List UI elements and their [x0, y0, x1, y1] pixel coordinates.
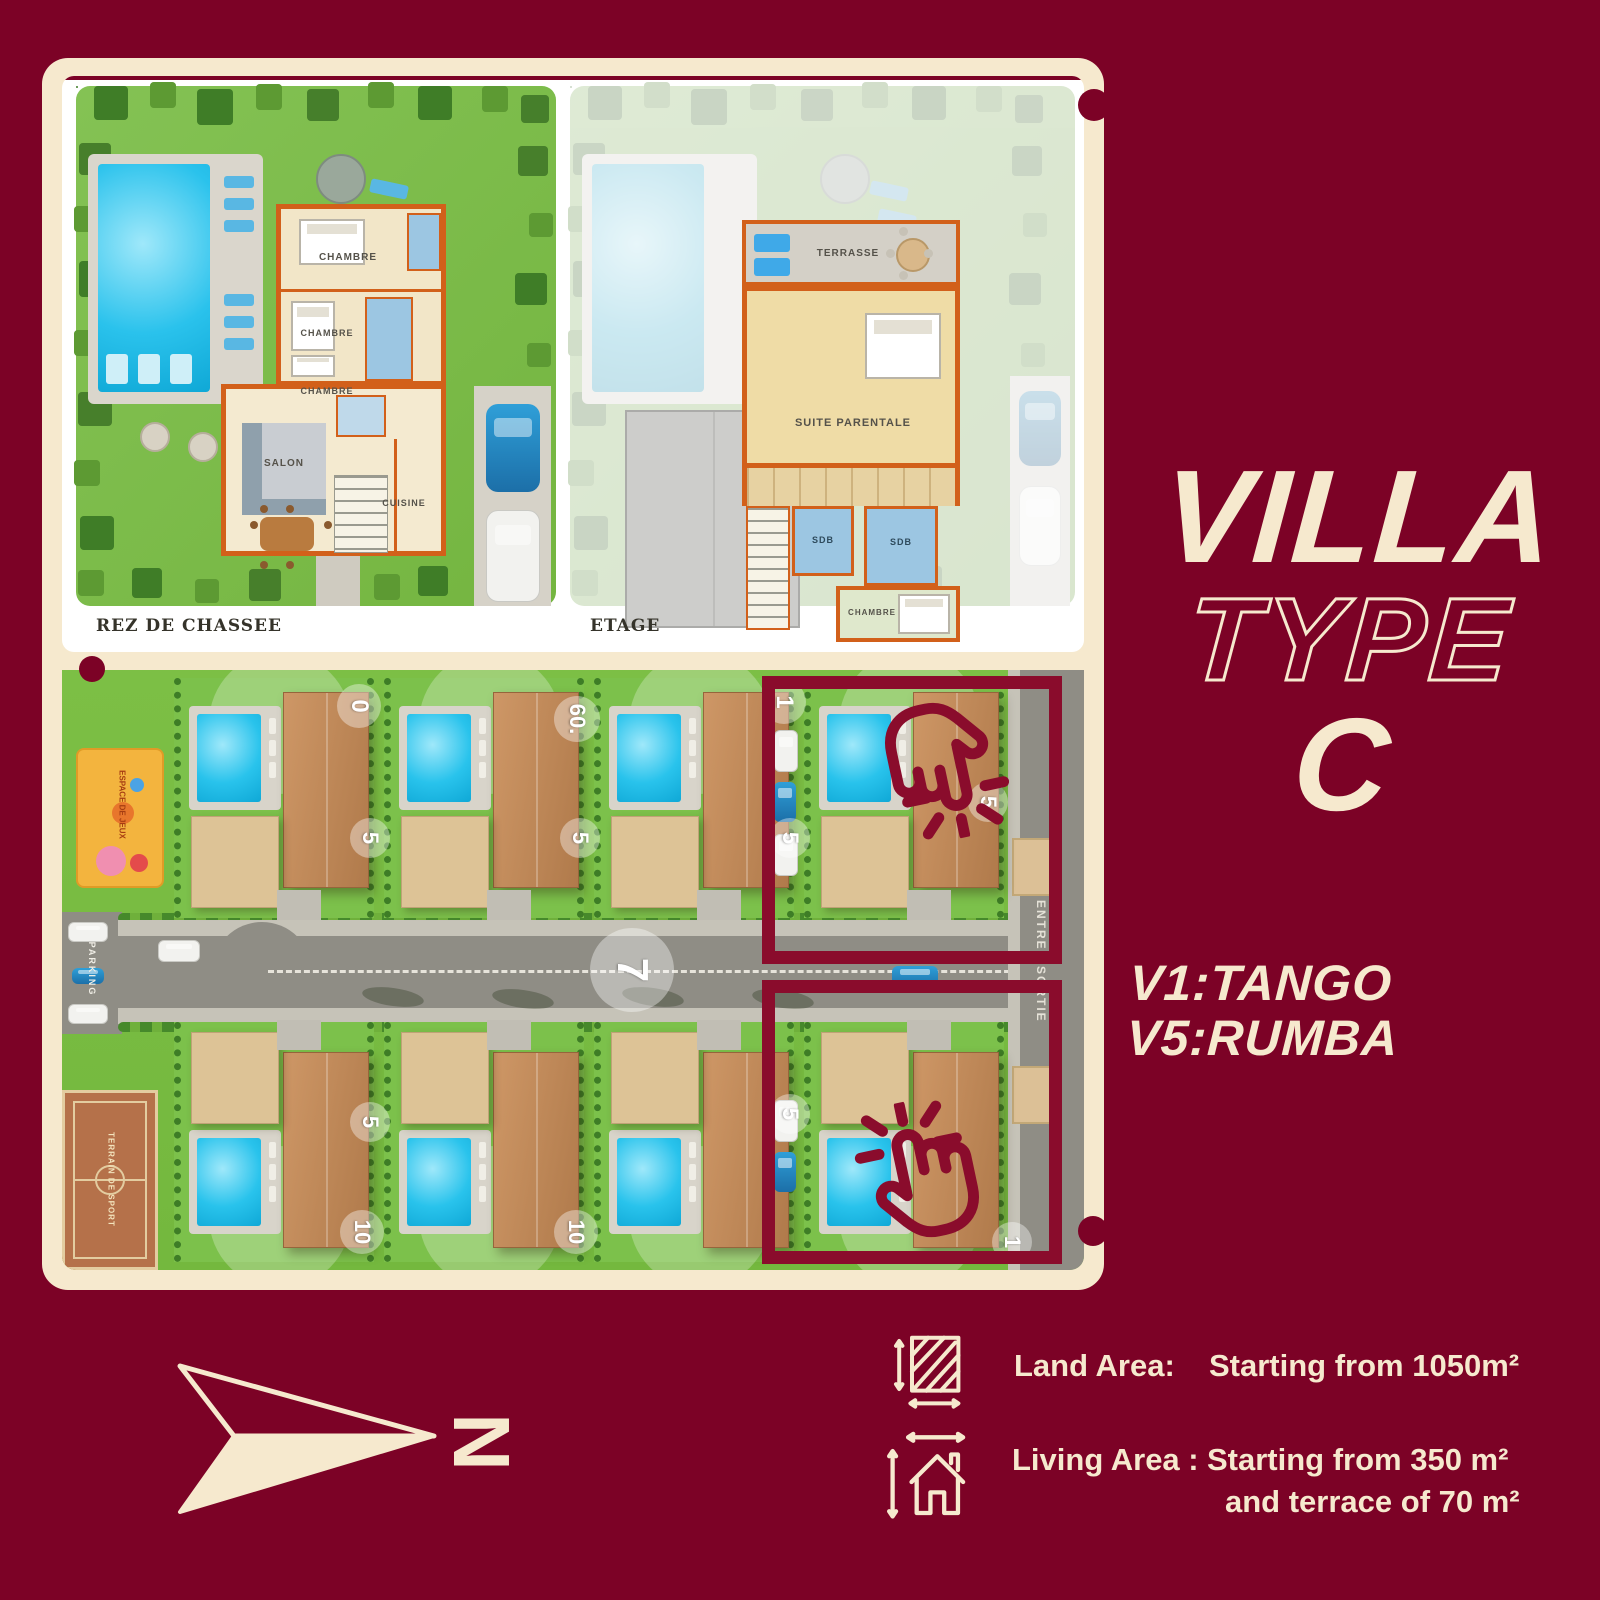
room-label: CHAMBRE [272, 386, 382, 396]
car-blue [486, 404, 540, 492]
dining-table [260, 517, 314, 551]
villa-names: V1:TANGO V5:RUMBA [1125, 956, 1403, 1066]
master-site-plan: ESPACE DE JEUX PARKING TERRAIN DE SPORT [62, 670, 1084, 1270]
bed [865, 313, 941, 379]
pool-deck [88, 154, 263, 404]
pool-deck [582, 154, 757, 404]
click-hand-icon[interactable] [846, 678, 1024, 856]
swimming-pool [592, 164, 704, 392]
brochure-page: CHAMBRE CHAMBRE CHAMBRE SALON CUISINE RE… [0, 0, 1600, 1600]
floor-plans-area: CHAMBRE CHAMBRE CHAMBRE SALON CUISINE RE… [62, 76, 1084, 652]
loungers [479, 1142, 486, 1158]
staircase [334, 475, 388, 553]
compass-north-letter: N [435, 1413, 527, 1471]
living-area-values: Starting from 350 m² and terrace of 70 m… [1207, 1442, 1520, 1520]
loungers [269, 1142, 276, 1158]
staircase [746, 506, 790, 630]
loungers [689, 718, 696, 734]
terrace-lounger [754, 258, 790, 276]
loungers [479, 718, 486, 734]
bathroom-sdb1: SDB [792, 506, 854, 576]
villa-roof-secondary [611, 1032, 699, 1124]
playground-item [96, 846, 126, 876]
room-label: CUISINE [364, 498, 444, 508]
pool [197, 714, 261, 802]
villa-roof-secondary [401, 1032, 489, 1124]
lot-badge: 10 [554, 1210, 598, 1254]
room-label: TERRASSE [798, 248, 898, 259]
land-area-row: Land Area: Starting from 1050m² [888, 1330, 1519, 1416]
house-bedroom-wing [276, 204, 446, 386]
upper-floor-plan: TERRASSE SUITE PARENTALE SDB SDB CHAMBRE [570, 82, 1075, 642]
playground: ESPACE DE JEUX [76, 748, 164, 888]
living-area-value: Starting from 350 m² [1207, 1442, 1520, 1478]
lot-badge: 60. [554, 696, 600, 742]
land-area-value: Starting from 1050m² [1209, 1348, 1519, 1384]
villa-name-v1: V1:TANGO [1128, 956, 1403, 1011]
lot-badge: 0 [337, 684, 381, 728]
bed [291, 301, 335, 351]
car-white [486, 510, 540, 602]
ground-floor-plan: CHAMBRE CHAMBRE CHAMBRE SALON CUISINE RE… [76, 82, 556, 642]
car-blue [1019, 391, 1061, 466]
deck-lounger [224, 294, 254, 306]
loungers [269, 718, 276, 734]
lot-badge: 5 [350, 818, 390, 858]
car-on-road [158, 940, 200, 962]
loungers [689, 1142, 696, 1158]
car-white [1019, 486, 1061, 566]
divider-notch [79, 656, 105, 682]
umbrella-icon [820, 154, 870, 204]
house-living-wing [221, 384, 446, 556]
playground-label: ESPACE DE JEUX [118, 763, 127, 847]
living-area-icon [884, 1420, 970, 1532]
land-area-label: Land Area: [1014, 1348, 1209, 1384]
entry-path [316, 556, 360, 606]
room-label: CHAMBRE [842, 608, 902, 617]
villa-roof-secondary [611, 816, 699, 908]
terrace: TERRASSE [742, 220, 960, 286]
road-badge: 7 [590, 928, 674, 1012]
pool [407, 1138, 471, 1226]
bathroom-sdb2: SDB [864, 506, 938, 586]
sun-lounger [869, 180, 909, 202]
villa-roof-secondary [191, 1032, 279, 1124]
room-label: SDB [801, 535, 845, 545]
plot-driveway [697, 1020, 741, 1050]
sun-lounger [369, 178, 409, 200]
room-label: SALON [244, 458, 324, 469]
garden-ground: CHAMBRE CHAMBRE CHAMBRE SALON CUISINE [76, 86, 556, 606]
lot-badge: 5 [560, 818, 600, 858]
land-area-icon [888, 1330, 968, 1416]
pool-lounger [106, 354, 128, 384]
playground-item [130, 778, 144, 792]
villa-name-v5: V5:RUMBA [1125, 1011, 1400, 1066]
villa-roof-secondary [401, 816, 489, 908]
bedroom-upper: CHAMBRE [836, 586, 960, 642]
deck-lounger [224, 338, 254, 350]
terrace-table [896, 238, 930, 272]
deck-lounger [224, 220, 254, 232]
garden-chair [188, 432, 218, 462]
umbrella-icon [316, 154, 366, 204]
corner-notch [1078, 89, 1110, 121]
court-label: TERRAIN DE SPORT [107, 1100, 116, 1260]
driveway [474, 386, 551, 606]
garden-chair [140, 422, 170, 452]
deck-lounger [224, 176, 254, 188]
bathroom [365, 297, 413, 381]
playground-item [130, 854, 148, 872]
corner-notch [1078, 1216, 1108, 1246]
plot-driveway [277, 890, 321, 920]
plot-driveway [487, 1020, 531, 1050]
swimming-pool [98, 164, 210, 392]
title-c: C [1107, 699, 1576, 831]
living-area-value2: and terrace of 70 m² [1225, 1484, 1520, 1520]
room-label: CHAMBRE [288, 252, 408, 263]
wall [281, 289, 441, 292]
room-label: SUITE PARENTALE [773, 417, 933, 429]
terrace-lounger [754, 234, 790, 252]
bed [291, 355, 335, 377]
plot-driveway [277, 1020, 321, 1050]
deck-lounger [224, 198, 254, 210]
compass-arrow-icon [172, 1360, 442, 1518]
lot-badge: 5 [350, 1102, 390, 1142]
pool [197, 1138, 261, 1226]
pool [617, 1138, 681, 1226]
plot-driveway [697, 890, 741, 920]
sport-court: TERRAIN DE SPORT [62, 1090, 158, 1270]
pool-lounger [138, 354, 160, 384]
bathroom [407, 213, 441, 271]
master-suite: SUITE PARENTALE [742, 286, 960, 468]
title-villa: VILLA [1124, 452, 1593, 581]
page-title: VILLA TYPE C [1107, 452, 1594, 831]
wc [336, 395, 386, 437]
tree-border [570, 86, 572, 88]
parking-area: PARKING [62, 912, 122, 1034]
plot-driveway [487, 890, 531, 920]
wall [394, 439, 397, 553]
click-hand-icon[interactable] [840, 1084, 1018, 1262]
title-type: TYPE [1116, 581, 1584, 699]
deck-lounger [224, 316, 254, 328]
driveway [1010, 376, 1070, 606]
living-area-label: Living Area : [1012, 1442, 1207, 1478]
pool-lounger [170, 354, 192, 384]
room-label: SDB [877, 537, 925, 547]
room-label: CHAMBRE [272, 328, 382, 338]
parking-label: PARKING [87, 927, 97, 1011]
sofa [242, 499, 326, 515]
villa-roof-secondary [191, 816, 279, 908]
plans-panel: CHAMBRE CHAMBRE CHAMBRE SALON CUISINE RE… [42, 58, 1104, 1290]
bed [898, 594, 950, 634]
dressing-corridor [742, 468, 960, 506]
plan-caption: ETAGE [590, 616, 660, 636]
pool [407, 714, 471, 802]
divider-line [62, 76, 1084, 80]
living-area-row: Living Area : Starting from 350 m² and t… [884, 1420, 1520, 1532]
tree-border [76, 86, 78, 88]
lot-badge: 10 [340, 1210, 384, 1254]
plan-caption: REZ DE CHASSEE [96, 616, 282, 636]
pool [617, 714, 681, 802]
